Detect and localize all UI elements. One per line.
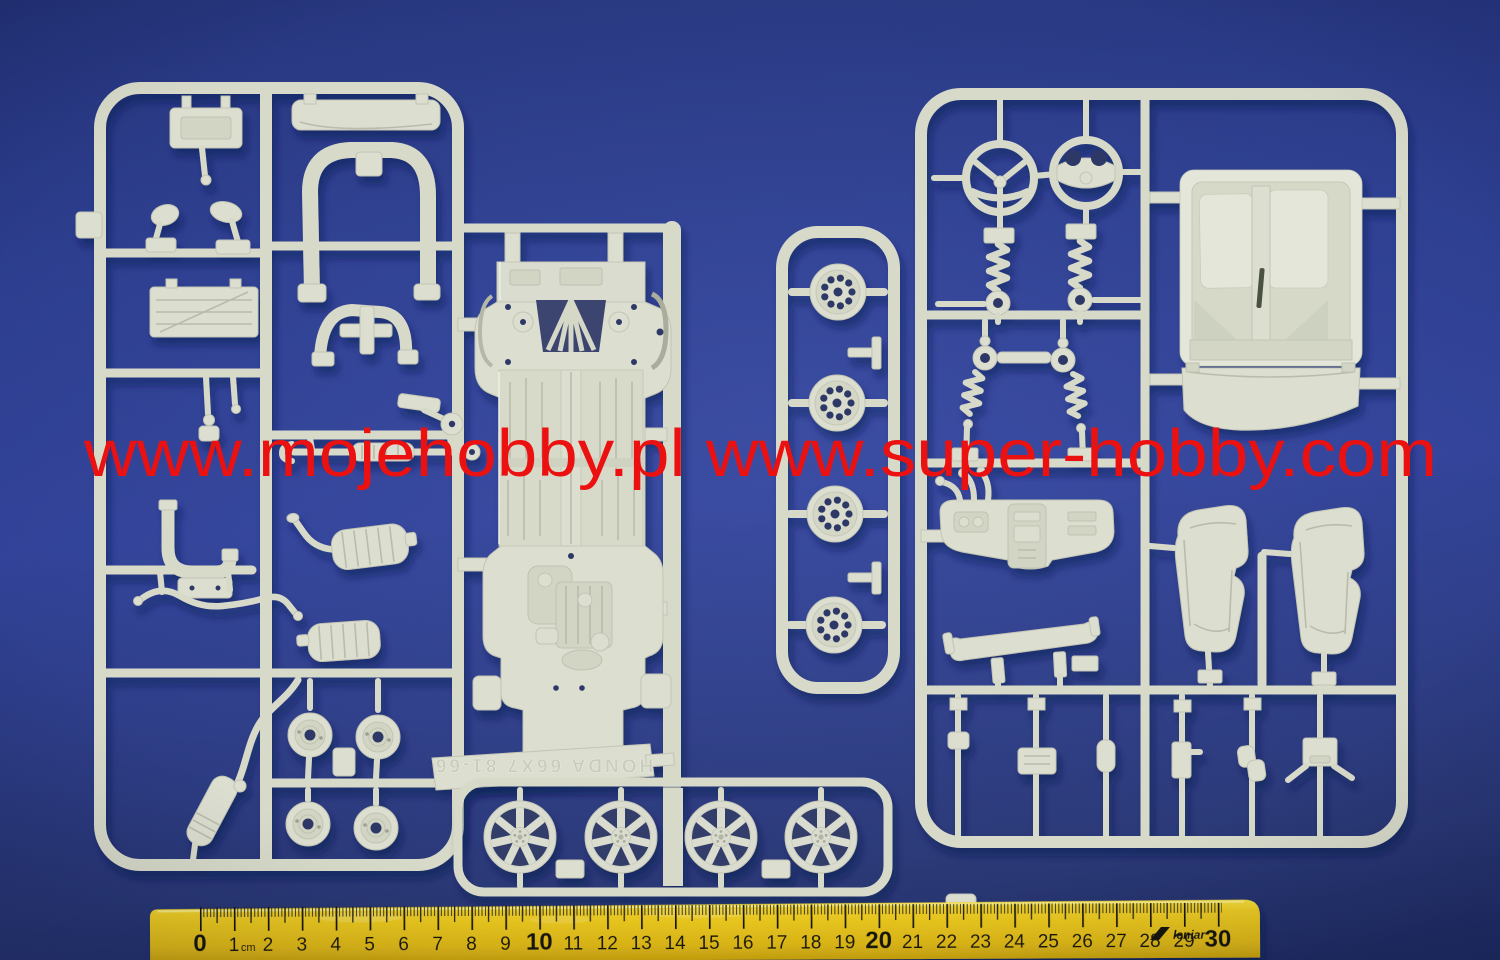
part-u-pipe xyxy=(159,500,238,598)
ruler-number: 11 xyxy=(563,934,583,955)
part-muffler-1 xyxy=(286,499,419,576)
part-front-subframe-arch xyxy=(298,150,440,302)
ruler-number: 14 xyxy=(664,933,686,954)
ruler-number: 18 xyxy=(800,932,821,953)
ruler-number: 27 xyxy=(1106,931,1127,952)
ruler-number: 15 xyxy=(698,933,719,954)
watermark-text: www.mojehobby.pl www.super-hobby.com xyxy=(83,416,1437,491)
ruler-number: 16 xyxy=(732,933,753,954)
ruler-number: 2 xyxy=(263,935,274,956)
ruler-number: 6 xyxy=(398,934,409,955)
ruler-number: 22 xyxy=(936,932,957,953)
ruler-number: 23 xyxy=(970,932,991,953)
part-steering-wheel-1 xyxy=(934,100,1056,234)
ruler-ticks xyxy=(200,903,1222,931)
part-brake-drums xyxy=(286,681,400,850)
part-shock-absorbers-upper xyxy=(938,224,1140,322)
part-crossmember xyxy=(292,94,440,130)
ruler-number: 17 xyxy=(766,933,787,954)
part-engine-bracket xyxy=(170,96,242,185)
ruler-number: 21 xyxy=(902,932,923,953)
part-rear-wing xyxy=(942,616,1100,688)
sprue-side-tab xyxy=(76,212,102,238)
ruler-number: 9 xyxy=(500,934,511,955)
sprue-photo-canvas: HONDA 66X7 81-66 xyxy=(0,0,1500,960)
ruler-number: 26 xyxy=(1072,931,1093,952)
part-small-levers xyxy=(146,198,250,254)
watermark: www.mojehobby.pl www.super-hobby.com xyxy=(83,416,1437,491)
part-exhaust-downpipe xyxy=(175,680,298,864)
ruler-number: 20 xyxy=(865,927,892,954)
part-muffler-2 xyxy=(296,620,381,664)
part-pedals xyxy=(1237,745,1267,782)
ruler-number: 10 xyxy=(526,929,553,956)
ruler-number: 12 xyxy=(597,933,618,954)
part-rear-arch xyxy=(312,306,418,366)
ruler-number: 5 xyxy=(364,934,375,955)
part-radiator xyxy=(150,279,258,337)
ruler-brand-text: leniar xyxy=(1173,928,1206,942)
ruler-number: 7 xyxy=(432,934,443,955)
part-interior-tub xyxy=(1150,170,1400,430)
tag-embossed-text: HONDA 66X7 81-66 xyxy=(433,754,653,775)
part-seat-left xyxy=(1175,506,1248,652)
ruler-number: 13 xyxy=(631,933,652,954)
part-chassis xyxy=(458,233,671,756)
ruler: 01cm234567891011121314151617181920212223… xyxy=(150,900,1260,960)
part-steering-wheel-2 xyxy=(1053,100,1145,230)
ruler-unit-label: cm xyxy=(241,942,256,954)
ruler-number: 4 xyxy=(330,935,341,956)
ruler-number: 1 xyxy=(229,935,240,956)
ruler-number: 24 xyxy=(1004,932,1026,953)
ruler-number: 19 xyxy=(834,932,855,953)
ruler-number: 8 xyxy=(466,934,477,955)
ruler-number: 3 xyxy=(297,935,308,956)
ruler-number: 0 xyxy=(193,930,206,957)
ruler-number: 30 xyxy=(1205,926,1232,953)
parts-small-fittings-bottom xyxy=(948,696,1352,836)
photo-model-kit-sprues: HONDA 66X7 81-66 xyxy=(0,0,1500,960)
part-seat-right xyxy=(1291,508,1364,654)
sprue-bottom-wheels xyxy=(458,782,976,908)
ruler-number: 25 xyxy=(1038,931,1059,952)
